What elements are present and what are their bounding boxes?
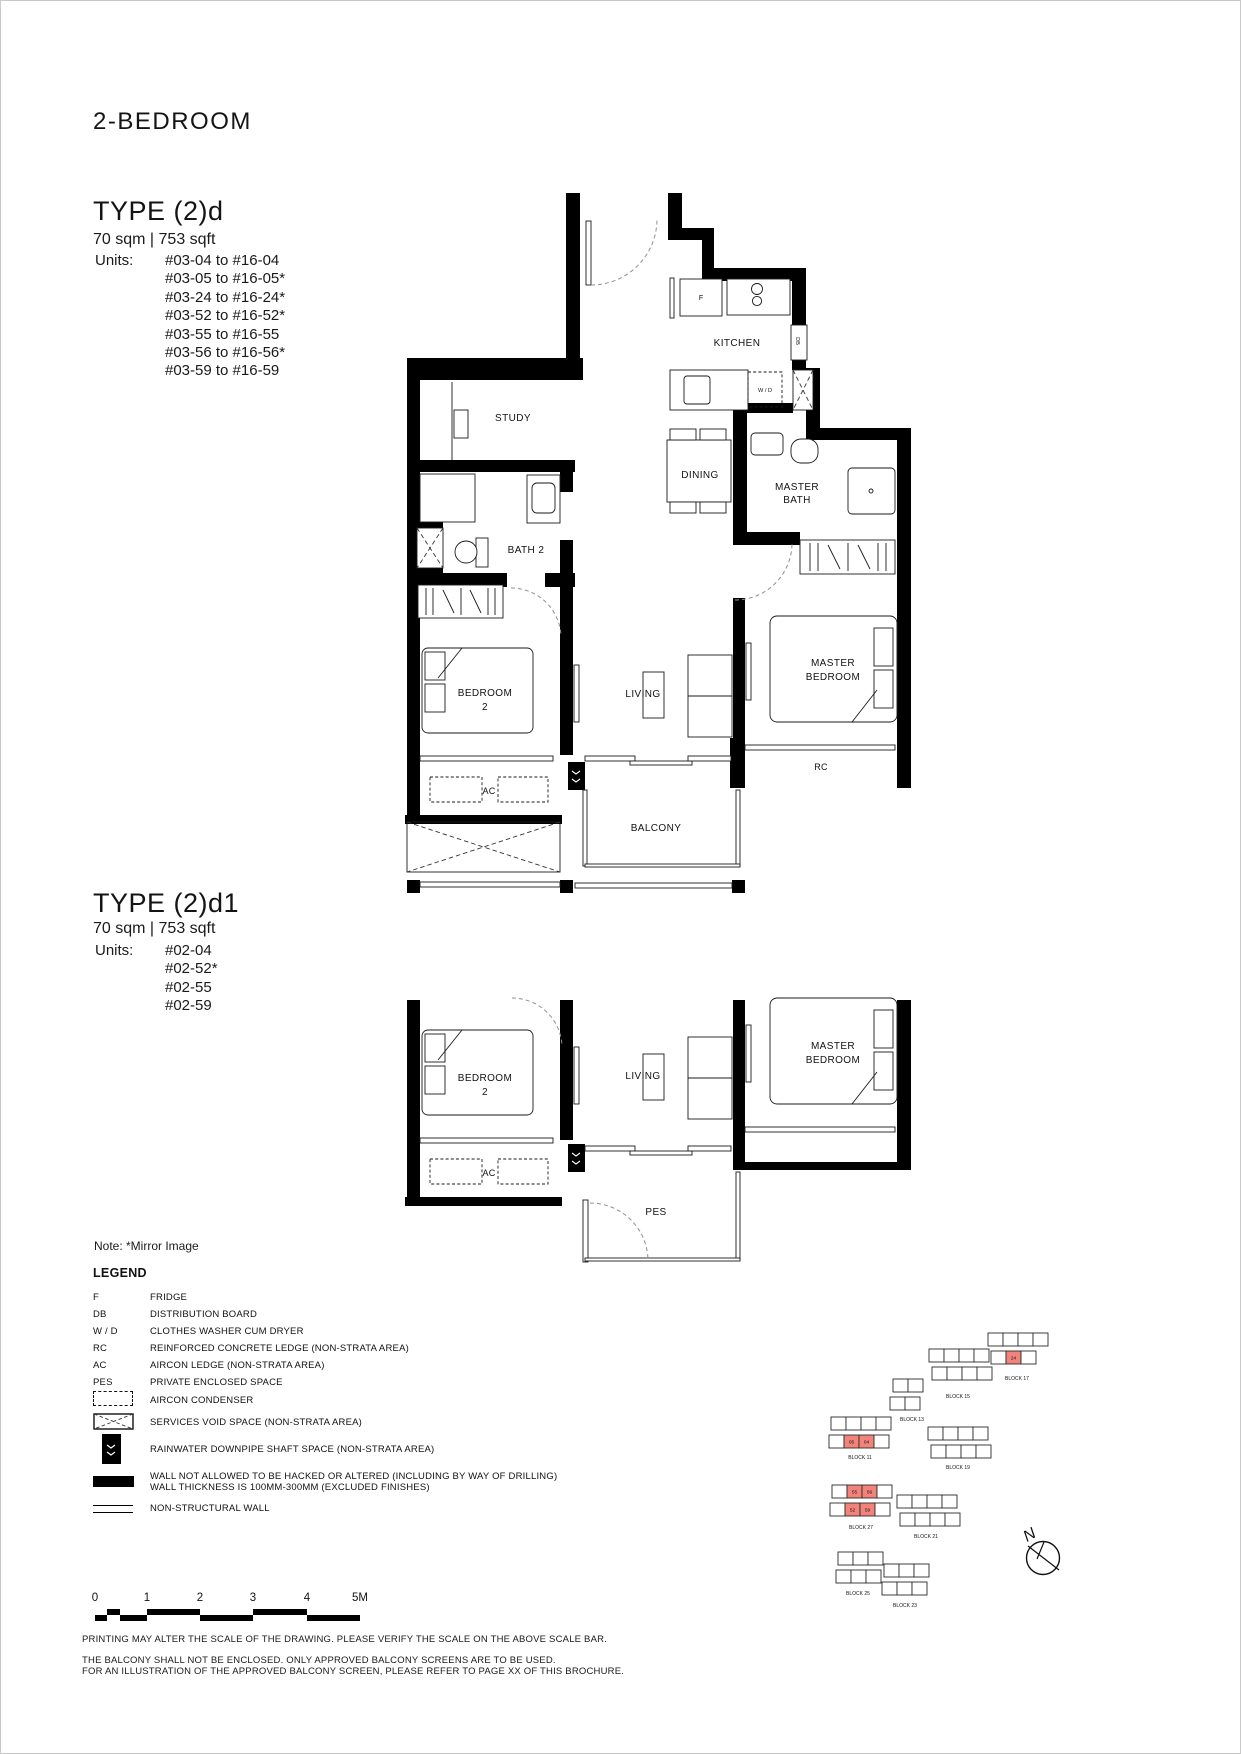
rainwater-downpipe-shaft <box>568 762 585 790</box>
study-desk <box>454 410 468 438</box>
site-map-block-label: BLOCK 27 <box>849 1525 873 1531</box>
label-bedroom2-1: BEDROOM <box>458 688 512 699</box>
mb-shower <box>848 468 895 514</box>
site-map-unit <box>836 1570 851 1583</box>
label-master-bath-2: BATH <box>783 495 811 506</box>
site-map-block-label: BLOCK 13 <box>900 1417 924 1423</box>
rainwater-downpipe-shaft <box>568 1144 585 1172</box>
pes-boundary <box>583 1146 740 1262</box>
aircon-condenser-symbol <box>93 1391 133 1406</box>
site-map-unit <box>877 1485 892 1498</box>
site-map-unit <box>928 1427 943 1440</box>
site-map-unit <box>893 1379 908 1392</box>
label-pes: PES <box>645 1207 666 1218</box>
site-map-unit <box>1003 1333 1018 1346</box>
unit-range: #03-59 to #16-59 <box>165 362 285 380</box>
scale-tick-3: 3 <box>250 1592 256 1604</box>
site-map-unit <box>912 1495 927 1508</box>
label-kitchen: KITCHEN <box>714 338 761 349</box>
mb-toilet <box>791 439 818 463</box>
site-map-unit-number: 52 <box>850 1508 856 1514</box>
site-map-unit <box>890 1397 905 1410</box>
label-rc: RC <box>814 762 828 772</box>
label-master-bath-1: MASTER <box>775 482 819 493</box>
unit-range: #02-52* <box>165 960 218 978</box>
site-map-block-label: BLOCK 21 <box>914 1534 938 1540</box>
site-map-unit <box>943 1427 958 1440</box>
site-map-unit <box>853 1552 868 1565</box>
site-map-unit <box>830 1503 845 1516</box>
site-map-block-13: BLOCK 13 <box>890 1379 924 1423</box>
site-map-unit <box>991 1351 1006 1364</box>
structural-wall-symbol <box>93 1476 134 1487</box>
site-map-unit <box>905 1397 920 1410</box>
label-ac: AC <box>482 1168 495 1178</box>
scale-tick-5: 5M <box>352 1592 368 1604</box>
services-void-symbol <box>93 1413 134 1430</box>
site-map-unit <box>912 1582 927 1595</box>
label-fridge: F <box>699 295 703 302</box>
label-master-bedroom-1: MASTER <box>811 1041 855 1052</box>
balcony-boundary <box>583 756 740 867</box>
label-master-bedroom-2: BEDROOM <box>806 1055 860 1066</box>
site-map-unit <box>914 1564 929 1577</box>
type-2d-area: 70 sqm | 753 sqft <box>93 231 215 249</box>
label-bath2: BATH 2 <box>508 545 545 556</box>
type-2d1-units: Units: #02-04 #02-52* #02-55 #02-59 <box>95 942 218 1016</box>
label-living: LIVING <box>625 689 660 700</box>
site-map-unit <box>1021 1351 1036 1364</box>
type-2d1-area: 70 sqm | 753 sqft <box>93 920 215 938</box>
disclaimer-scale: PRINTING MAY ALTER THE SCALE OF THE DRAW… <box>82 1634 607 1645</box>
study-fixtures <box>452 382 468 460</box>
site-map-block-label: BLOCK 19 <box>946 1465 970 1471</box>
scale-tick-1: 1 <box>144 1592 150 1604</box>
legend-title: LEGEND <box>93 1266 147 1280</box>
unit-range: #03-52 to #16-52* <box>165 307 285 325</box>
wardrobe-master <box>800 540 895 574</box>
site-map-block-25: BLOCK 25 <box>836 1552 883 1597</box>
site-map-unit <box>1018 1333 1033 1346</box>
site-map-unit <box>897 1495 912 1508</box>
label-bedroom2-2: 2 <box>482 1087 488 1098</box>
scale-tick-0: 0 <box>92 1592 98 1604</box>
site-map-unit <box>908 1379 923 1392</box>
kitchen-sink <box>684 376 710 404</box>
site-map-unit <box>944 1349 959 1362</box>
tv-console-master <box>746 643 751 700</box>
toilet-tank <box>476 538 488 567</box>
site-map-unit <box>866 1570 881 1583</box>
site-map-unit <box>874 1435 889 1448</box>
mirror-image-note: Note: *Mirror Image <box>94 1239 199 1253</box>
tv-console-master <box>746 1025 751 1082</box>
label-db: DB <box>794 337 800 345</box>
unit-range: #03-05 to #16-05* <box>165 270 285 288</box>
unit-range: #02-59 <box>165 997 218 1015</box>
bedroom2-door-swing <box>511 588 561 636</box>
scale-tick-4: 4 <box>304 1592 311 1604</box>
site-map-unit <box>959 1349 974 1362</box>
label-bedroom2-1: BEDROOM <box>458 1073 512 1084</box>
window-master <box>745 745 895 750</box>
site-map-unit <box>929 1349 944 1362</box>
unit-range: #02-04 <box>165 942 218 960</box>
window-bedroom2 <box>420 756 553 761</box>
site-map-unit-number: 05 <box>849 1440 855 1446</box>
unit-range: #03-55 to #16-55 <box>165 326 285 344</box>
pes-door-swing <box>590 1203 648 1261</box>
site-map-unit <box>976 1445 991 1458</box>
site-map-unit <box>868 1552 883 1565</box>
units-label: Units: <box>95 942 133 960</box>
site-map-unit <box>973 1427 988 1440</box>
site-map-unit <box>932 1367 947 1380</box>
site-map-unit <box>947 1367 962 1380</box>
site-map-block-label: BLOCK 11 <box>848 1455 872 1461</box>
services-void-bath2 <box>417 528 443 568</box>
site-map-unit <box>851 1570 866 1583</box>
pes-gate <box>583 1200 588 1262</box>
label-wd: W / D <box>758 388 772 394</box>
site-map-unit <box>846 1417 861 1430</box>
site-map-block-21: BLOCK 21 <box>897 1495 960 1540</box>
disclaimer-balcony1: THE BALCONY SHALL NOT BE ENCLOSED. ONLY … <box>82 1655 556 1666</box>
master-bath-door-swing <box>735 543 792 600</box>
site-map-block-23: BLOCK 23 <box>882 1564 929 1609</box>
floorplan-type-2d: KITCHEN F DB W / D STUDY DINING MASTER B… <box>405 193 911 872</box>
site-map-block-17: 24BLOCK 17 <box>988 1333 1048 1382</box>
entry-door-leaf <box>586 221 591 285</box>
basin <box>532 483 555 513</box>
window-master <box>745 1127 895 1132</box>
bed-master <box>770 616 897 722</box>
site-map-unit <box>915 1513 930 1526</box>
window-bedroom2 <box>420 1138 553 1143</box>
rainwater-downpipe-symbol <box>102 1434 121 1464</box>
wardrobe-bedroom2 <box>418 585 503 618</box>
site-map-unit <box>831 1417 846 1430</box>
site-map-block-label: BLOCK 15 <box>946 1394 970 1400</box>
site-map-unit <box>875 1503 890 1516</box>
site-map-unit <box>832 1485 847 1498</box>
site-map-unit <box>988 1333 1003 1346</box>
window-strip <box>574 665 579 722</box>
label-master-bedroom-1: MASTER <box>811 658 855 669</box>
disclaimer-balcony2: FOR AN ILLUSTRATION OF THE APPROVED BALC… <box>82 1666 624 1677</box>
label-living: LIVING <box>625 1071 660 1082</box>
services-void-kitchen <box>793 370 813 410</box>
site-map-block-11: 0504BLOCK 11 <box>829 1417 891 1461</box>
site-map-block-label: BLOCK 25 <box>846 1591 870 1597</box>
site-map-unit <box>930 1513 945 1526</box>
unit-range: #03-56 to #16-56* <box>165 344 285 362</box>
site-map-unit <box>945 1513 960 1526</box>
type-2d1-title: TYPE (2)d1 <box>93 888 239 919</box>
mb-basin <box>751 433 783 455</box>
unit-range: #03-24 to #16-24* <box>165 289 285 307</box>
entry-door-swing <box>591 219 657 285</box>
shower <box>420 474 475 522</box>
floorplan-type-2d1: BEDROOM 2 LIVING MASTER BEDROOM AC PES <box>405 880 911 1262</box>
site-map-block-label: BLOCK 23 <box>893 1603 917 1609</box>
label-master-bedroom-2: BEDROOM <box>806 672 860 683</box>
site-map-unit <box>897 1582 912 1595</box>
label-dining: DINING <box>681 470 718 481</box>
scale-bar: 0 1 2 3 4 5M <box>92 1592 368 1621</box>
page-title: 2-BEDROOM <box>93 108 252 136</box>
site-map-unit <box>977 1367 992 1380</box>
site-map-unit <box>876 1417 891 1430</box>
site-map-unit <box>900 1513 915 1526</box>
site-map-unit <box>974 1349 989 1362</box>
site-map-unit <box>838 1552 853 1565</box>
north-compass: N <box>1020 1525 1059 1575</box>
site-map-block-label: BLOCK 17 <box>1005 1376 1029 1382</box>
site-map-unit <box>884 1564 899 1577</box>
site-map-unit <box>931 1445 946 1458</box>
scale-tick-2: 2 <box>197 1592 203 1604</box>
cut-wall-line-left <box>420 882 560 887</box>
site-map-unit <box>942 1495 957 1508</box>
site-map-unit <box>961 1445 976 1458</box>
services-void-bottom <box>407 822 560 872</box>
type-2d-title: TYPE (2)d <box>93 196 224 227</box>
site-map-unit <box>927 1495 942 1508</box>
site-map-unit-number: 24 <box>1011 1356 1017 1362</box>
site-map-block-15: BLOCK 15 <box>929 1349 992 1400</box>
site-map-unit <box>1033 1333 1048 1346</box>
cut-wall-line-right <box>575 883 732 888</box>
site-map-unit-number: 56 <box>867 1490 873 1496</box>
unit-range: #02-55 <box>165 979 218 997</box>
master-bath-fixtures <box>751 433 895 514</box>
site-map-block-19: BLOCK 19 <box>928 1427 991 1471</box>
site-map-unit-number: 55 <box>852 1490 858 1496</box>
site-map-unit <box>829 1435 844 1448</box>
site-map-unit <box>958 1427 973 1440</box>
site-map-unit <box>946 1445 961 1458</box>
label-study: STUDY <box>495 413 531 424</box>
brochure-page: KITCHEN F DB W / D STUDY DINING MASTER B… <box>0 0 1241 1754</box>
toilet-bowl <box>455 541 477 563</box>
site-map-unit <box>882 1582 897 1595</box>
site-map-unit <box>899 1564 914 1577</box>
window-strip <box>574 1047 579 1104</box>
site-map-unit-number: 59 <box>865 1508 871 1514</box>
site-map-unit <box>861 1417 876 1430</box>
site-map-block-27: 55565259BLOCK 27 <box>830 1485 892 1531</box>
non-structural-wall-symbol <box>93 1505 133 1513</box>
unit-range: #03-04 to #16-04 <box>165 252 285 270</box>
type-2d-units: Units: #03-04 to #16-04 #03-05 to #16-05… <box>95 252 285 381</box>
label-balcony: BALCONY <box>631 823 682 834</box>
units-label: Units: <box>95 252 133 270</box>
site-map: 24BLOCK 17BLOCK 15BLOCK 130504BLOCK 11BL… <box>829 1333 1048 1609</box>
label-ac: AC <box>482 786 495 796</box>
site-map-unit <box>962 1367 977 1380</box>
label-bedroom2-2: 2 <box>482 702 488 713</box>
site-map-unit-number: 04 <box>864 1440 870 1446</box>
